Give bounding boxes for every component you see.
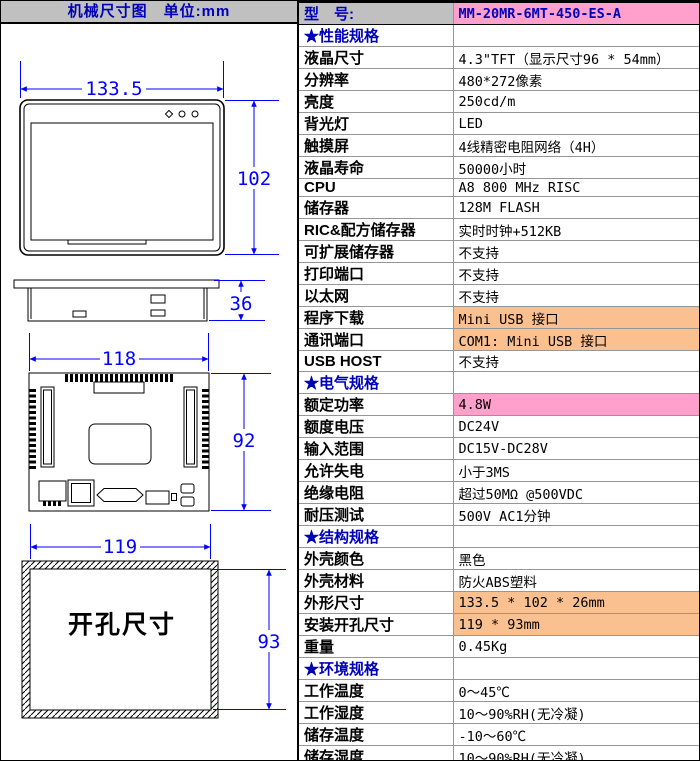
back-view: 118 92 [29,333,271,511]
section-header: ★电气规格 [298,372,453,394]
spec-label: 液晶寿命 [298,157,453,179]
spec-label: 安装开孔尺寸 [298,614,453,636]
cutout-view: 开孔尺寸 119 93 [22,524,286,718]
spec-value: 10～90%RH(无冷凝) [453,702,700,724]
spec-value: 4.8W [453,394,700,416]
spec-value [453,372,700,394]
model-label: 型 号: [298,2,453,25]
dim-cutout-width: 119 [103,536,137,558]
spec-value: 500V AC1分钟 [453,504,700,526]
spec-row: 储存湿度10～90%RH(无冷凝) [298,746,700,761]
spec-row: 绝缘电阻超过50MΩ @500VDC [298,482,700,504]
spec-row: 外壳颜色黑色 [298,548,700,570]
spec-row: 程序下载Mini USB 接口 [298,307,700,329]
spec-value: 0～45℃ [453,680,700,702]
front-view: 133.5 102 [20,61,279,255]
spec-row: RIC&配方储存器实时时钟+512KB [298,219,700,241]
spec-value: A8 800 MHz RISC [453,179,700,197]
spec-row: 打印端口不支持 [298,263,700,285]
dim-back-width: 118 [102,348,136,370]
dim-side-depth: 36 [230,293,253,315]
spec-label: 工作温度 [298,680,453,702]
spec-label: 工作湿度 [298,702,453,724]
spec-row: ★性能规格 [298,25,700,47]
spec-label: 触摸屏 [298,135,453,157]
spec-value: 不支持 [453,241,700,263]
spec-row: 工作湿度10～90%RH(无冷凝) [298,702,700,724]
spec-label: 分辨率 [298,69,453,91]
spec-value: 不支持 [453,285,700,307]
spec-row: 输入范围DC15V-DC28V [298,438,700,460]
model-row: 型 号: MM-20MR-6MT-450-ES-A [298,2,700,25]
spec-value: DC15V-DC28V [453,438,700,460]
section-header: ★性能规格 [298,25,453,47]
spec-row: 亮度250cd/m [298,91,700,113]
dim-back-height: 92 [233,430,256,452]
spec-row: ★结构规格 [298,526,700,548]
spec-label: 通讯端口 [298,329,453,351]
spec-label: 液晶尺寸 [298,47,453,69]
spec-label: 耐压测试 [298,504,453,526]
spec-value: 133.5 * 102 * 26mm [453,592,700,614]
spec-row: 工作温度0～45℃ [298,680,700,702]
spec-table: 型 号: MM-20MR-6MT-450-ES-A ★性能规格液晶尺寸4.3"T… [297,1,700,761]
spec-value: 10～90%RH(无冷凝) [453,746,700,761]
model-value: MM-20MR-6MT-450-ES-A [453,2,700,25]
spec-value: COM1: Mini USB 接口 [453,329,700,351]
section-header: ★结构规格 [298,526,453,548]
dim-cutout-height: 93 [258,631,281,653]
spec-value: 4.3"TFT（显示尺寸96 * 54mm） [453,47,700,69]
spec-row: 重量0.45Kg [298,636,700,658]
spec-label: USB HOST [298,351,453,372]
spec-label: CPU [298,179,453,197]
spec-value: 不支持 [453,263,700,285]
spec-row: ★电气规格 [298,372,700,394]
spec-label: 外形尺寸 [298,592,453,614]
spec-row: 额定功率4.8W [298,394,700,416]
spec-value: Mini USB 接口 [453,307,700,329]
spec-value [453,25,700,47]
indicator-leds-icon [165,110,198,117]
spec-row: 可扩展储存器不支持 [298,241,700,263]
spec-value [453,526,700,548]
spec-label: 以太网 [298,285,453,307]
spec-value: 480*272像素 [453,69,700,91]
spec-row: 允许失电小于3MS [298,460,700,482]
spec-row: 安装开孔尺寸119 * 93mm [298,614,700,636]
spec-value: 小于3MS [453,460,700,482]
spec-value: 250cd/m [453,91,700,113]
spec-value: 不支持 [453,351,700,372]
spec-label: 打印端口 [298,263,453,285]
spec-value: 超过50MΩ @500VDC [453,482,700,504]
drawing-title: 机械尺寸图 单位:mm [1,1,297,24]
spec-value: 黑色 [453,548,700,570]
spec-sheet-page: 133.5 102 36 [0,0,700,761]
spec-row: 耐压测试500V AC1分钟 [298,504,700,526]
dim-front-height: 102 [237,168,271,190]
side-view: 36 [14,280,265,321]
spec-label: 额定功率 [298,394,453,416]
spec-row: 液晶尺寸4.3"TFT（显示尺寸96 * 54mm） [298,47,700,69]
back-ports [39,480,194,506]
spec-row: 储存温度-10～60℃ [298,724,700,746]
spec-value: 0.45Kg [453,636,700,658]
spec-label: 储存温度 [298,724,453,746]
spec-value: DC24V [453,416,700,438]
spec-rows: 型 号: MM-20MR-6MT-450-ES-A ★性能规格液晶尺寸4.3"T… [298,2,700,761]
spec-row: 背光灯LED [298,113,700,135]
spec-value: 50000小时 [453,157,700,179]
spec-value: 4线精密电阻网络（4H） [453,135,700,157]
spec-label: 储存器 [298,197,453,219]
spec-value: 119 * 93mm [453,614,700,636]
spec-value: 实时时钟+512KB [453,219,700,241]
spec-row: 触摸屏4线精密电阻网络（4H） [298,135,700,157]
spec-row: CPUA8 800 MHz RISC [298,179,700,197]
section-header: ★环境规格 [298,658,453,680]
spec-row: USB HOST不支持 [298,351,700,372]
spec-row: 储存器128M FLASH [298,197,700,219]
spec-row: ★环境规格 [298,658,700,680]
mechanical-drawing: 133.5 102 36 [1,1,298,760]
spec-label: 外壳颜色 [298,548,453,570]
dim-front-width: 133.5 [85,78,142,100]
spec-value [453,658,700,680]
spec-label: 输入范围 [298,438,453,460]
spec-label: 重量 [298,636,453,658]
spec-label: 外壳材料 [298,570,453,592]
spec-row: 额度电压DC24V [298,416,700,438]
spec-label: 程序下载 [298,307,453,329]
spec-label: 亮度 [298,91,453,113]
spec-label: 储存湿度 [298,746,453,761]
spec-row: 外壳材料防火ABS塑料 [298,570,700,592]
spec-label: 额度电压 [298,416,453,438]
spec-value: 防火ABS塑料 [453,570,700,592]
spec-row: 通讯端口COM1: Mini USB 接口 [298,329,700,351]
spec-row: 液晶寿命50000小时 [298,157,700,179]
spec-value: 128M FLASH [453,197,700,219]
spec-row: 以太网不支持 [298,285,700,307]
spec-label: 背光灯 [298,113,453,135]
spec-row: 外形尺寸133.5 * 102 * 26mm [298,592,700,614]
spec-label: 绝缘电阻 [298,482,453,504]
spec-value: LED [453,113,700,135]
spec-value: -10～60℃ [453,724,700,746]
spec-row: 分辨率480*272像素 [298,69,700,91]
spec-label: 允许失电 [298,460,453,482]
cutout-label: 开孔尺寸 [68,611,176,639]
spec-label: 可扩展储存器 [298,241,453,263]
spec-label: RIC&配方储存器 [298,219,453,241]
